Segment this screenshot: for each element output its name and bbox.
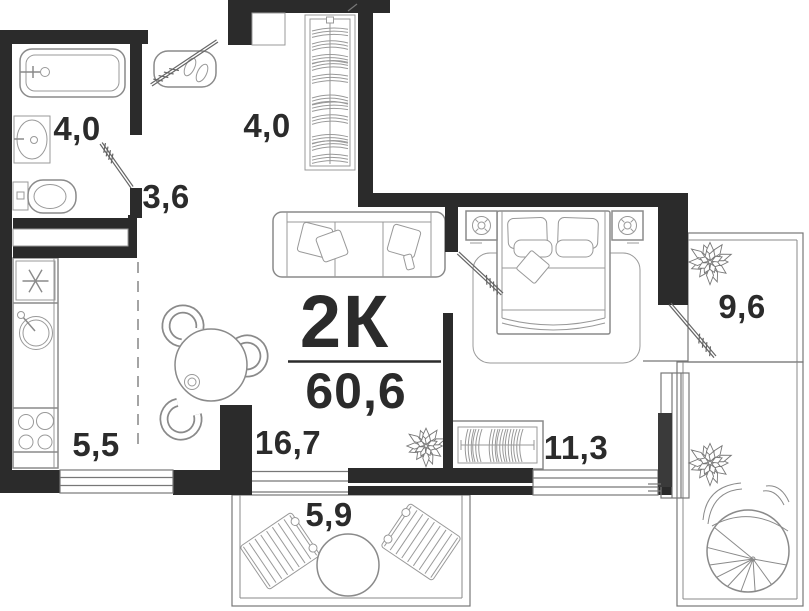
- door-line: [671, 303, 716, 356]
- window-panel: [658, 413, 672, 487]
- plant-icon: [407, 428, 446, 466]
- toilet: [13, 180, 76, 213]
- shoe-bench: [154, 51, 216, 87]
- room-label-kitchen: 5,5: [72, 426, 119, 463]
- door-line: [669, 305, 714, 358]
- floor-plan-page: 4,0 3,6 4,0 5,5 16,7 5,9 11,3 9,6 2К 60,…: [0, 0, 809, 611]
- door-leaf: [100, 143, 133, 188]
- dining-table: [175, 329, 247, 401]
- door-line: [457, 254, 501, 295]
- balcony-table: [317, 534, 379, 596]
- stove: [19, 413, 54, 450]
- kitchen-sink: [18, 312, 53, 350]
- wicker-chair: [703, 483, 789, 592]
- plant-icon: [689, 443, 731, 485]
- apartment-type-label: 2К: [300, 280, 390, 363]
- floor-plan: 4,0 3,6 4,0 5,5 16,7 5,9 11,3 9,6 2К 60,…: [0, 0, 809, 611]
- kitchen-window: [60, 470, 173, 493]
- door-hatch: [702, 338, 703, 348]
- bathtub: [20, 49, 125, 97]
- bedroom-window: [533, 470, 658, 495]
- room-label-hallway: 3,6: [142, 178, 189, 215]
- room-label-closet: 4,0: [243, 107, 290, 144]
- plant-center: [708, 260, 711, 263]
- bathroom-sink: [14, 116, 50, 163]
- lounge-chair-right: [379, 502, 461, 581]
- door-hatch: [699, 334, 700, 344]
- nightstand-right: [612, 211, 643, 243]
- hall-closet: [305, 15, 355, 170]
- bed: [497, 211, 610, 334]
- plant-center: [424, 444, 427, 447]
- door-hatch: [710, 346, 711, 356]
- nightstand-left: [466, 211, 497, 243]
- room-label-balcony: 5,9: [305, 496, 352, 533]
- room-label-bedroom: 11,3: [544, 429, 608, 466]
- bed-pillow-small: [556, 240, 593, 257]
- kitchen-counter: [13, 258, 58, 468]
- balcony-threshold: [252, 472, 348, 493]
- total-area-label: 60,6: [305, 363, 406, 419]
- lounge-chair: [379, 502, 461, 581]
- door-line: [102, 143, 133, 187]
- bedroom-wardrobe: [452, 421, 543, 469]
- room-label-loggia: 9,6: [718, 288, 765, 325]
- duct-niche: [13, 229, 128, 246]
- sofa: [273, 212, 445, 277]
- room-label-bathroom: 4,0: [53, 110, 100, 147]
- plant-center: [708, 461, 711, 464]
- fridge: [16, 261, 55, 300]
- dining-chair: [158, 400, 202, 443]
- door-leaf: [457, 252, 503, 295]
- room-label-living: 16,7: [255, 424, 321, 461]
- door-leaf: [669, 303, 716, 358]
- entry-niche: [252, 13, 285, 45]
- door-hatch: [706, 342, 707, 352]
- fridge-star-icon: [23, 270, 49, 293]
- plant-icon: [689, 242, 731, 284]
